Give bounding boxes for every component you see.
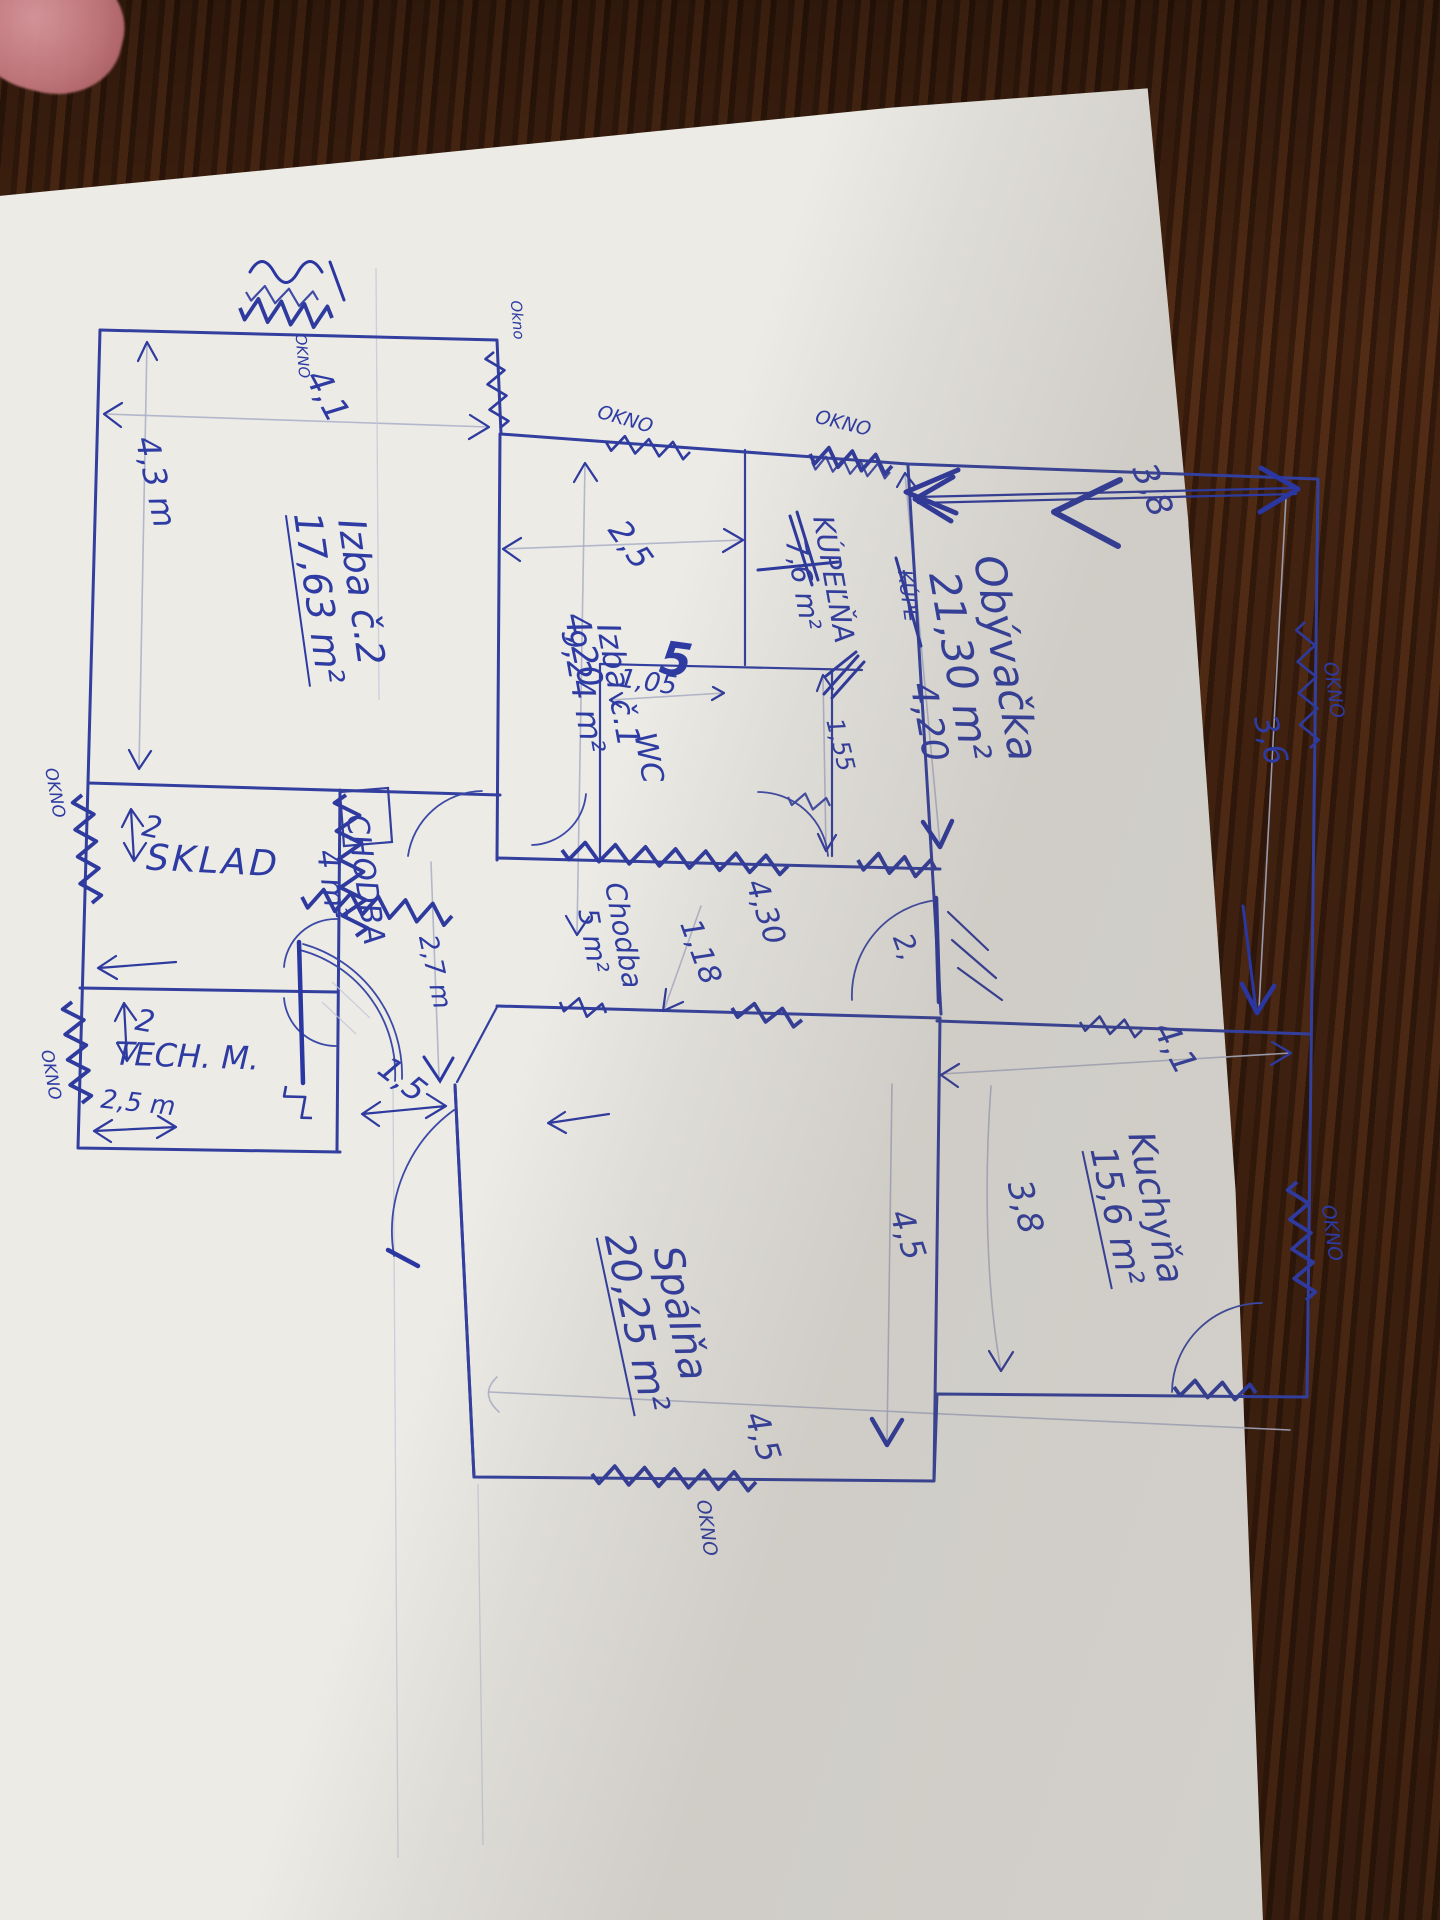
pencil-dimension-lines bbox=[104, 268, 1291, 1858]
room-name: TECH. M. bbox=[114, 1035, 260, 1078]
room-label-wc: WC bbox=[627, 730, 669, 786]
room-label-tech-m: TECH. M. bbox=[114, 1037, 259, 1078]
photo-scene: Izba č.2 17,63 m² Izba č.1 9,24 m² KÚPEĽ… bbox=[0, 0, 1440, 1920]
room-name: SKLAD bbox=[145, 837, 281, 885]
window-label-izba2-top: OKNO bbox=[292, 333, 313, 379]
window-label-step: Okno bbox=[507, 300, 527, 341]
room-label-sklad: SKLAD bbox=[145, 838, 281, 885]
